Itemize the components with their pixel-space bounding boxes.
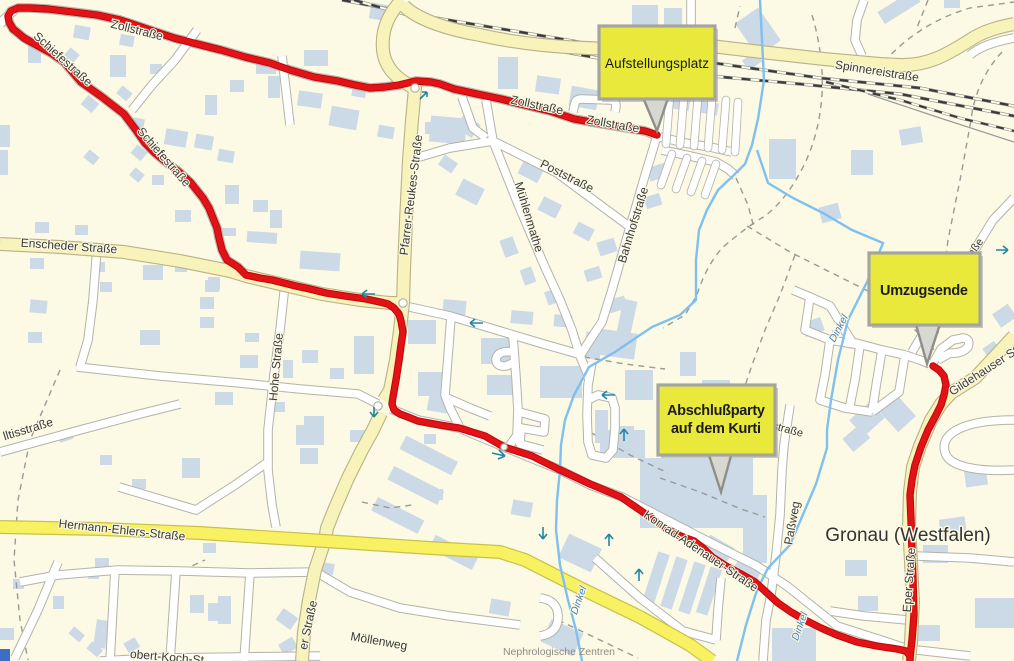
svg-text:Aufstellungsplatz: Aufstellungsplatz — [605, 56, 709, 71]
svg-text:Gronau (Westfalen): Gronau (Westfalen) — [825, 525, 990, 546]
svg-text:Nephrologische Zentren: Nephrologische Zentren — [503, 646, 615, 658]
svg-text:Umzugsende: Umzugsende — [880, 283, 968, 299]
svg-text:Abschlußparty: Abschlußparty — [667, 403, 765, 419]
svg-text:auf dem Kurti: auf dem Kurti — [671, 421, 761, 437]
